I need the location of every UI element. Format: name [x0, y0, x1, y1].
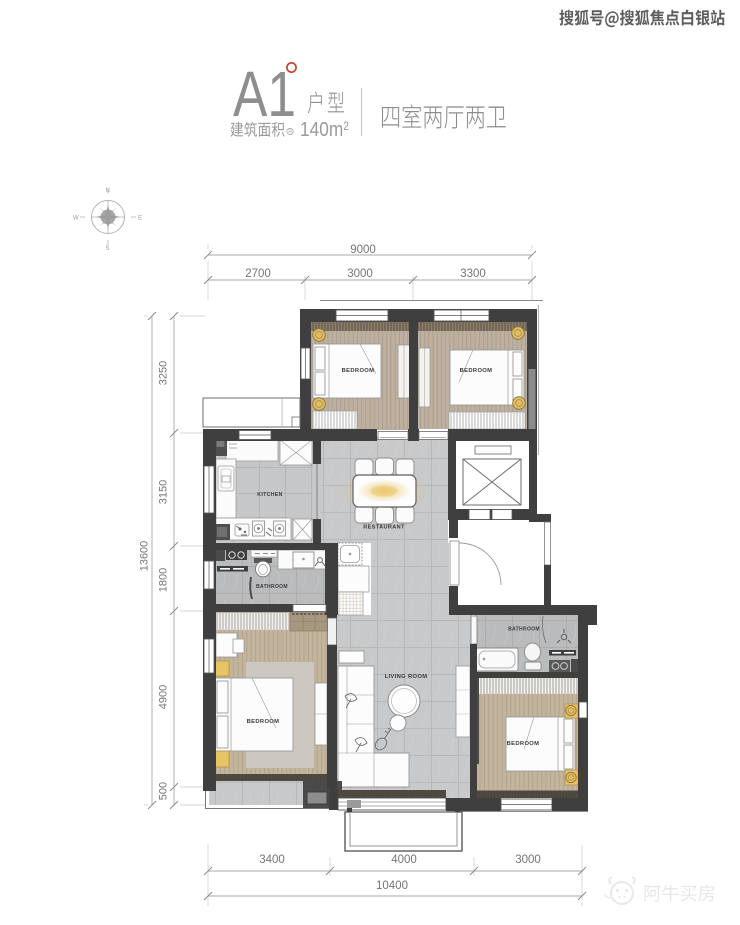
svg-text:RESTAURANT: RESTAURANT — [363, 525, 405, 531]
svg-text:BEDROOM: BEDROOM — [460, 368, 493, 374]
svg-text:LIVING ROOM: LIVING ROOM — [385, 674, 428, 680]
svg-text:140m2: 140m2 — [300, 119, 349, 141]
svg-text:BATHROOM: BATHROOM — [508, 627, 540, 633]
svg-text:KITCHEN: KITCHEN — [257, 492, 283, 498]
svg-text:BEDROOM: BEDROOM — [247, 719, 280, 725]
svg-text:R: R — [288, 130, 292, 136]
svg-text:E: E — [138, 216, 142, 222]
svg-text:N: N — [106, 188, 110, 194]
svg-text:3400: 3400 — [259, 854, 285, 866]
svg-text:3000: 3000 — [347, 268, 373, 280]
svg-text:4000: 4000 — [391, 854, 417, 866]
svg-text:9000: 9000 — [350, 244, 376, 256]
svg-text:3300: 3300 — [460, 268, 486, 280]
svg-text:3150: 3150 — [158, 480, 170, 504]
svg-text:500: 500 — [158, 782, 170, 800]
svg-text:W: W — [73, 216, 79, 222]
svg-text:BEDROOM: BEDROOM — [507, 741, 540, 747]
svg-text:3250: 3250 — [158, 361, 170, 385]
svg-text:10400: 10400 — [376, 880, 408, 892]
svg-text:BEDROOM: BEDROOM — [342, 368, 375, 374]
svg-text:1800: 1800 — [158, 568, 170, 592]
svg-text:BATHROOM: BATHROOM — [256, 584, 288, 590]
svg-text:3000: 3000 — [515, 854, 541, 866]
svg-text:4900: 4900 — [158, 685, 170, 709]
svg-text:13600: 13600 — [139, 541, 151, 572]
svg-text:2700: 2700 — [245, 268, 271, 280]
svg-text:S: S — [106, 246, 110, 252]
